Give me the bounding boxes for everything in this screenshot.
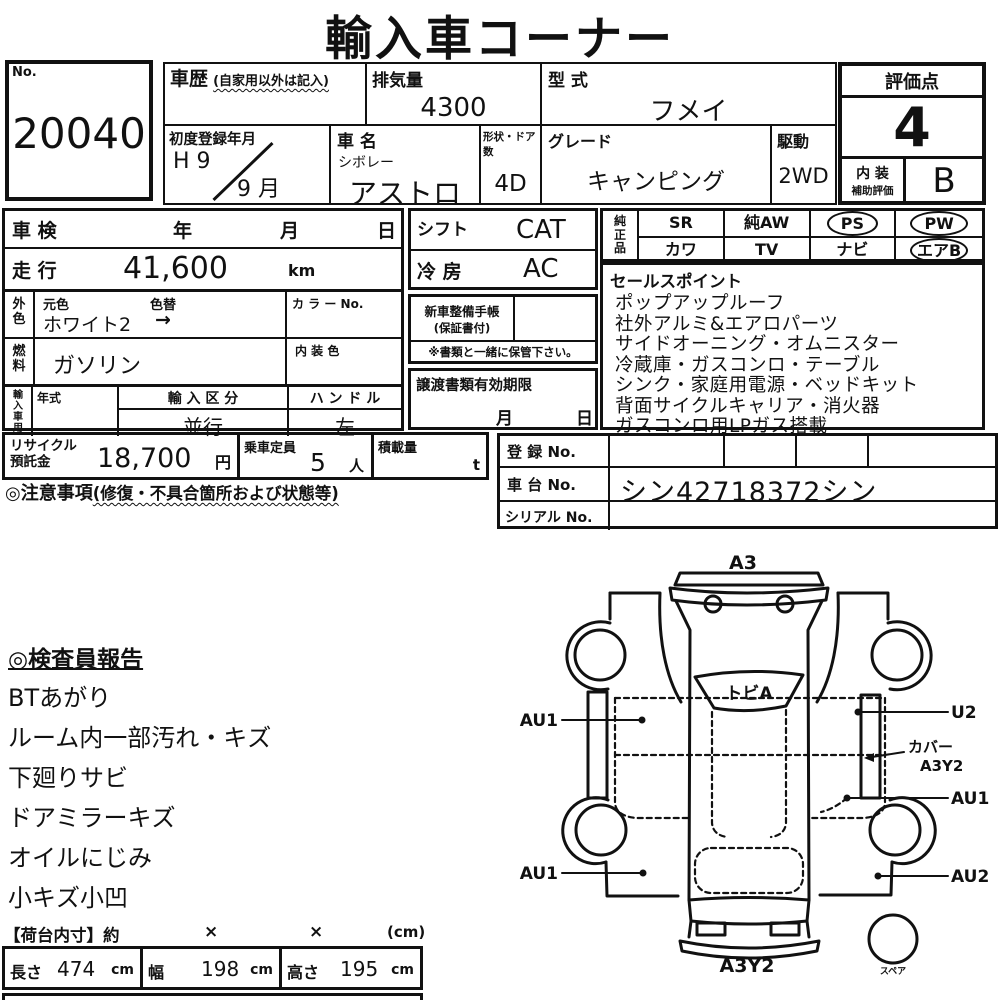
factory-equipment-label: 純 正 品 <box>603 211 639 259</box>
sales-point-item: ポップアップルーフ <box>615 294 982 315</box>
import-row: 輸 入 車 用 年式 輸 入 区 分 並行 ハ ン ド ル 左 <box>5 387 401 436</box>
load-unit: t <box>473 456 480 474</box>
cargo-header-line: 【荷台内寸】約 × × (cm) <box>4 922 434 944</box>
inspector-report-title: ◎検査員報告 <box>8 640 408 674</box>
poptop-dash-left <box>712 712 727 837</box>
shaken-year: 年 <box>173 216 192 243</box>
transfer-docs-label: 譲渡書類有効期限 <box>416 374 595 395</box>
cargo-width-value: 198 <box>201 957 239 981</box>
front-face <box>689 898 809 925</box>
color-change-arrow: → <box>155 309 171 331</box>
displacement-label: 排気量 <box>372 66 540 91</box>
registration-divider <box>867 436 869 466</box>
sales-points-box: セールスポイント ポップアップルーフ 社外アルミ&エアロパーツ サイドオーニング… <box>600 262 985 430</box>
recycle-label-1: リサイクル <box>10 438 77 454</box>
shift-value: CAT <box>516 215 566 245</box>
factory-equipment-grid: 純 正 品 SR 純AW PS PW カワ TV ナビ エアB <box>600 208 985 262</box>
vehicle-diagram: A3 トビA AU1 AU1 U2 カバー A3Y2 AU1 AU2 A3Y2 … <box>490 555 1000 1000</box>
import-label-1: 輸 <box>5 390 31 401</box>
left-rear-wheel <box>576 805 626 855</box>
cargo-times-1: × <box>204 922 218 942</box>
cargo-height-unit: cm <box>391 962 414 978</box>
diagram-label-au1-right: AU1 <box>951 789 989 809</box>
cargo-times-2: × <box>309 922 323 942</box>
cooling-row: 冷 房 AC <box>411 251 595 289</box>
equipment-label-char-1: 純 <box>603 215 637 229</box>
right-front-wheel <box>872 630 922 680</box>
cargo-length-cell: 長さ 474 cm <box>2 946 143 990</box>
diagram-label-tobia: トビA <box>725 684 773 704</box>
equipment-cell-sr: SR <box>639 211 725 238</box>
caution-note: (修復・不具合箇所および状態等) <box>93 484 339 503</box>
equipment-value-ps-circled: PS <box>827 211 878 236</box>
body-right-edge <box>808 601 822 900</box>
equipment-value-airbag-circled: エアB <box>910 238 968 263</box>
cargo-height-value: 195 <box>340 957 378 981</box>
caution-label: ◎注意事項 <box>5 483 93 504</box>
equipment-cell-airbag: エアB <box>896 238 982 263</box>
sales-point-item: 社外アルミ&エアロパーツ <box>615 315 982 336</box>
equipment-label-char-2: 正 <box>603 229 637 243</box>
cargo-length-value: 474 <box>57 957 95 981</box>
handle-label: ハ ン ド ル <box>289 387 401 410</box>
sales-point-item: 背面サイクルキャリア・消火器 <box>615 397 982 418</box>
ext-color-label-2: 色 <box>5 312 33 327</box>
capacity-label: 乗車定員 <box>244 437 296 456</box>
fuel-row: 燃 料 ガソリン 内 装 色 <box>5 339 401 387</box>
cargo-length-label: 長さ <box>10 959 42 983</box>
grade-value: キャンピング <box>542 162 770 196</box>
cargo-header: 【荷台内寸】約 <box>4 926 120 945</box>
shift-row: シフト CAT <box>411 211 595 251</box>
shift-ac-box: シフト CAT 冷 房 AC <box>408 208 598 290</box>
shift-label: シフト <box>417 215 468 240</box>
rear-roof-shape <box>675 573 823 585</box>
mileage-value: 41,600 <box>123 251 228 286</box>
registration-no-row: 登 録 No. <box>500 436 995 468</box>
transfer-month: 月 <box>496 404 513 429</box>
first-registration-label: 初度登録年月 <box>169 128 329 149</box>
car-name-value: アストロ <box>331 172 479 212</box>
inspector-item: ルーム内一部汚れ・キズ <box>8 718 408 758</box>
diagram-label-spare: スペア <box>880 966 906 977</box>
diagram-label-cover-1: カバー <box>908 738 953 756</box>
dot-au2 <box>875 873 882 880</box>
equipment-label-char-3: 品 <box>603 242 637 256</box>
equipment-value-tv: TV <box>755 240 778 259</box>
recycle-label-2: 預託金 <box>10 454 77 470</box>
score-box: 評価点 4 内 装 補助評価 B <box>838 62 986 205</box>
cargo-width-unit: cm <box>250 962 273 978</box>
interior-score-label-2: 補助評価 <box>842 183 903 198</box>
equipment-value-pw-circled: PW <box>910 211 967 236</box>
first-registration-era: H 9 <box>173 149 211 174</box>
service-book-note: (保証書付) <box>411 320 513 336</box>
inspector-item: オイルにじみ <box>8 838 408 878</box>
right-door-panel <box>817 593 838 702</box>
capacity-unit: 人 <box>349 455 364 476</box>
transfer-docs-box: 譲渡書類有効期限 月 日 <box>408 368 598 430</box>
chassis-no-row: 車 台 No. シン42718372シン <box>500 468 995 502</box>
dot-au1-upper-left <box>639 717 646 724</box>
fuel-value: ガソリン <box>53 348 141 380</box>
color-no-label: カ ラ ー No. <box>292 295 363 312</box>
equipment-value-kawa: カワ <box>665 240 697 259</box>
right-panel-bottom <box>820 862 892 895</box>
windshield-dash <box>695 848 803 893</box>
left-panel-bottom <box>606 862 678 896</box>
diagram-label-u2: U2 <box>951 703 977 723</box>
shaken-row: 車 検 年 月 日 <box>5 211 401 249</box>
displacement-cell: 排気量 4300 <box>365 62 542 126</box>
cargo-width-label: 幅 <box>148 959 164 983</box>
service-book-label: 新車整備手帳 <box>411 301 513 320</box>
grade-label: グレード <box>548 128 770 152</box>
recycle-deposit-cell: リサイクル 預託金 18,700 円 <box>2 432 240 480</box>
score-label: 評価点 <box>842 66 982 98</box>
equipment-cell-pw: PW <box>896 211 982 238</box>
equipment-value-aw: 純AW <box>744 213 789 232</box>
registration-divider <box>723 436 725 466</box>
serial-no-label: シリアル No. <box>500 502 610 530</box>
registration-divider <box>795 436 797 466</box>
body-doors-cell: 形状・ドア数 4D <box>479 124 542 205</box>
equipment-value-sr: SR <box>669 213 693 232</box>
sales-point-item: サイドオーニング・オムニスター <box>615 335 982 356</box>
lot-number-box: No. 20040 <box>5 60 153 201</box>
load-capacity-cell: 積載量 t <box>371 432 489 480</box>
car-maker: シボレー <box>338 152 479 172</box>
diagram-label-au2: AU2 <box>951 867 989 887</box>
diagram-label-au1-lower-left: AU1 <box>520 864 558 884</box>
registration-table: 登 録 No. 車 台 No. シン42718372シン シリアル No. <box>497 433 998 529</box>
shaken-month: 月 <box>280 216 299 243</box>
rear-bumper-band <box>670 588 828 605</box>
serial-no-row: シリアル No. <box>500 502 995 530</box>
model-code-cell: 型 式 フメイ <box>540 62 837 126</box>
capacity-value: 5 <box>310 448 326 477</box>
sales-point-item: シンク・家庭用電源・ベッドキット <box>615 376 982 397</box>
cargo-unit-note: (cm) <box>387 923 425 941</box>
car-name-label: 車 名 <box>337 127 479 152</box>
exterior-color-row: 外 色 元色 色替 ホワイト2 → カ ラ ー No. <box>5 292 401 339</box>
mileage-unit: km <box>288 261 315 280</box>
fuel-label-2: 料 <box>5 359 33 374</box>
displacement-value: 4300 <box>367 93 540 123</box>
equipment-cell-navi: ナビ <box>811 238 897 263</box>
dash-curve-au1-right <box>821 798 847 812</box>
car-name-cell: 車 名 シボレー アストロ <box>329 124 481 205</box>
service-book-box: 新車整備手帳 (保証書付) ※書類と一緒に保管下さい。 <box>408 294 598 364</box>
history-label: 車歴 <box>170 68 208 90</box>
interior-score-value: B <box>906 156 982 201</box>
model-code-value: フメイ <box>542 91 835 128</box>
left-rocker <box>588 692 607 798</box>
transfer-day: 日 <box>576 404 593 429</box>
inspector-item: BTあがり <box>8 678 408 718</box>
sales-points-title: セールスポイント <box>610 268 982 292</box>
shaken-day: 日 <box>377 216 396 243</box>
inspector-report: ◎検査員報告 BTあがり ルーム内一部汚れ・キズ 下廻りサビ ドアミラーキズ オ… <box>8 640 408 918</box>
mileage-label: 走 行 <box>12 256 57 283</box>
load-label: 積載量 <box>378 437 417 456</box>
dashed-outline-left <box>615 698 689 818</box>
equipment-value-navi: ナビ <box>836 240 868 259</box>
first-registration-cell: 初度登録年月 H 9 9 月 <box>163 124 331 205</box>
drive-value: 2WD <box>772 164 835 188</box>
interior-color-label: 内 装 色 <box>295 342 339 359</box>
equipment-cell-ps: PS <box>811 211 897 238</box>
body-left-edge <box>676 601 690 900</box>
year-type-label: 年式 <box>37 389 61 406</box>
right-panel-edge <box>838 593 888 619</box>
shaken-label: 車 検 <box>12 216 57 243</box>
import-class-label: 輸 入 区 分 <box>119 387 287 410</box>
import-label-2: 入 <box>5 401 31 412</box>
diagram-label-a3y2: A3Y2 <box>720 955 775 977</box>
grade-cell: グレード キャンピング <box>540 124 772 205</box>
recycle-unit: 円 <box>215 449 231 473</box>
first-registration-month: 9 月 <box>237 171 280 203</box>
ext-color-label-1: 外 <box>5 297 33 312</box>
lot-number-value: 20040 <box>9 109 149 158</box>
body-doors-value: 4D <box>481 171 540 197</box>
cargo-width-cell: 幅 198 cm <box>140 946 282 990</box>
dot-u2 <box>855 709 862 716</box>
registration-no-label: 登 録 No. <box>500 436 610 466</box>
diagram-label-cover-2: A3Y2 <box>920 757 963 775</box>
history-cell: 車歴 (自家用以外は記入) <box>163 62 367 126</box>
right-rear-wheel <box>870 805 920 855</box>
poptop-dash-right <box>771 710 786 837</box>
capacity-cell: 乗車定員 5 人 <box>237 432 374 480</box>
inspector-item: 小キズ小凹 <box>8 878 408 918</box>
diagram-label-au1-upper-left: AU1 <box>520 711 558 731</box>
chassis-no-label: 車 台 No. <box>500 468 610 500</box>
cargo-length-unit: cm <box>111 962 134 978</box>
page-title: 輸入車コーナー <box>0 0 1000 69</box>
caution-line: ◎注意事項(修復・不具合箇所および状態等) <box>5 479 339 505</box>
ext-color-value: ホワイト2 <box>43 310 131 337</box>
equipment-cell-tv: TV <box>725 238 811 263</box>
recycle-value: 18,700 <box>97 443 191 474</box>
body-doors-label: 形状・ドア数 <box>483 129 540 159</box>
spare-tire <box>869 915 917 963</box>
equipment-cell-aw: 純AW <box>725 211 811 238</box>
interior-score-label-1: 内 装 <box>842 163 903 183</box>
cargo-next-row-partial <box>2 993 423 1000</box>
dot-au1-lower-left <box>640 870 647 877</box>
left-front-wheel <box>575 630 625 680</box>
sales-point-item: 冷蔵庫・ガスコンロ・テーブル <box>615 356 982 377</box>
equipment-cell-kawa: カワ <box>639 238 725 263</box>
diagram-label-a3: A3 <box>729 555 757 574</box>
drive-cell: 駆動 2WD <box>770 124 837 205</box>
left-door-panel <box>610 593 681 702</box>
history-note: (自家用以外は記入) <box>213 74 329 89</box>
score-value: 4 <box>842 98 982 160</box>
cooling-value: AC <box>523 254 558 284</box>
cargo-height-label: 高さ <box>287 959 319 983</box>
import-label-3: 車 <box>5 412 31 423</box>
inspector-item: 下廻りサビ <box>8 758 408 798</box>
cargo-height-cell: 高さ 195 cm <box>279 946 423 990</box>
mileage-row: 走 行 41,600 km <box>5 249 401 292</box>
cooling-label: 冷 房 <box>417 257 462 284</box>
model-code-label: 型 式 <box>548 66 835 91</box>
keep-note: ※書類と一緒に保管下さい。 <box>411 340 595 363</box>
drive-label: 駆動 <box>777 128 835 152</box>
vehicle-info-panel: 車 検 年 月 日 走 行 41,600 km 外 色 元色 色替 ホワイト2 … <box>2 208 404 431</box>
fuel-label-1: 燃 <box>5 344 33 359</box>
inspector-item: ドアミラーキズ <box>8 798 408 838</box>
lot-number-label: No. <box>12 65 37 80</box>
right-rocker <box>861 695 880 798</box>
